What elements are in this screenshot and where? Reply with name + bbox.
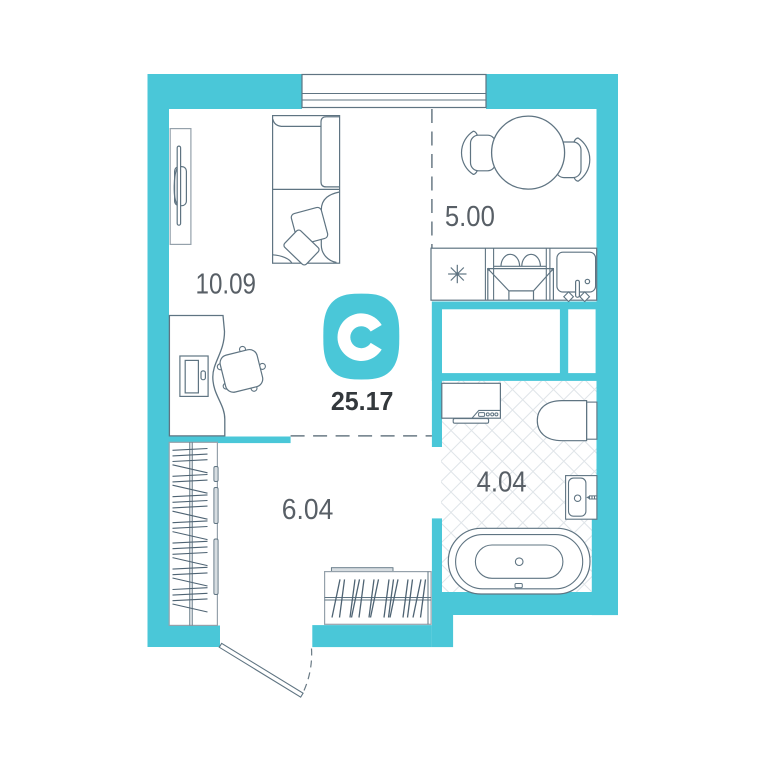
svg-text:10.09: 10.09 — [196, 269, 257, 301]
svg-text:5.00: 5.00 — [445, 201, 495, 233]
svg-text:25.17: 25.17 — [331, 388, 394, 416]
svg-text:4.04: 4.04 — [477, 466, 527, 498]
svg-text:6.04: 6.04 — [282, 494, 334, 526]
